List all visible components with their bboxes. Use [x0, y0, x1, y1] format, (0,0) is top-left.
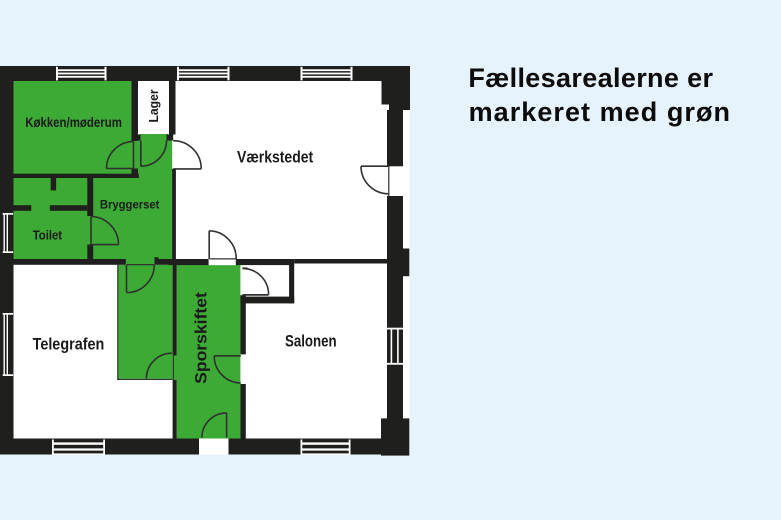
svg-text:Salonen: Salonen — [285, 332, 337, 351]
svg-text:Telegrafen: Telegrafen — [33, 335, 105, 353]
svg-text:Køkken/møderum: Køkken/møderum — [25, 115, 122, 130]
svg-text:Lager: Lager — [146, 89, 161, 122]
svg-text:markeret med grøn: markeret med grøn — [469, 97, 731, 127]
svg-text:Sporskiftet: Sporskiftet — [192, 292, 211, 384]
svg-text:Fællesarealerne er: Fællesarealerne er — [468, 63, 713, 93]
svg-text:Værkstedet: Værkstedet — [237, 147, 314, 166]
svg-text:Bryggerset: Bryggerset — [100, 198, 160, 212]
svg-text:Toilet: Toilet — [33, 228, 63, 243]
